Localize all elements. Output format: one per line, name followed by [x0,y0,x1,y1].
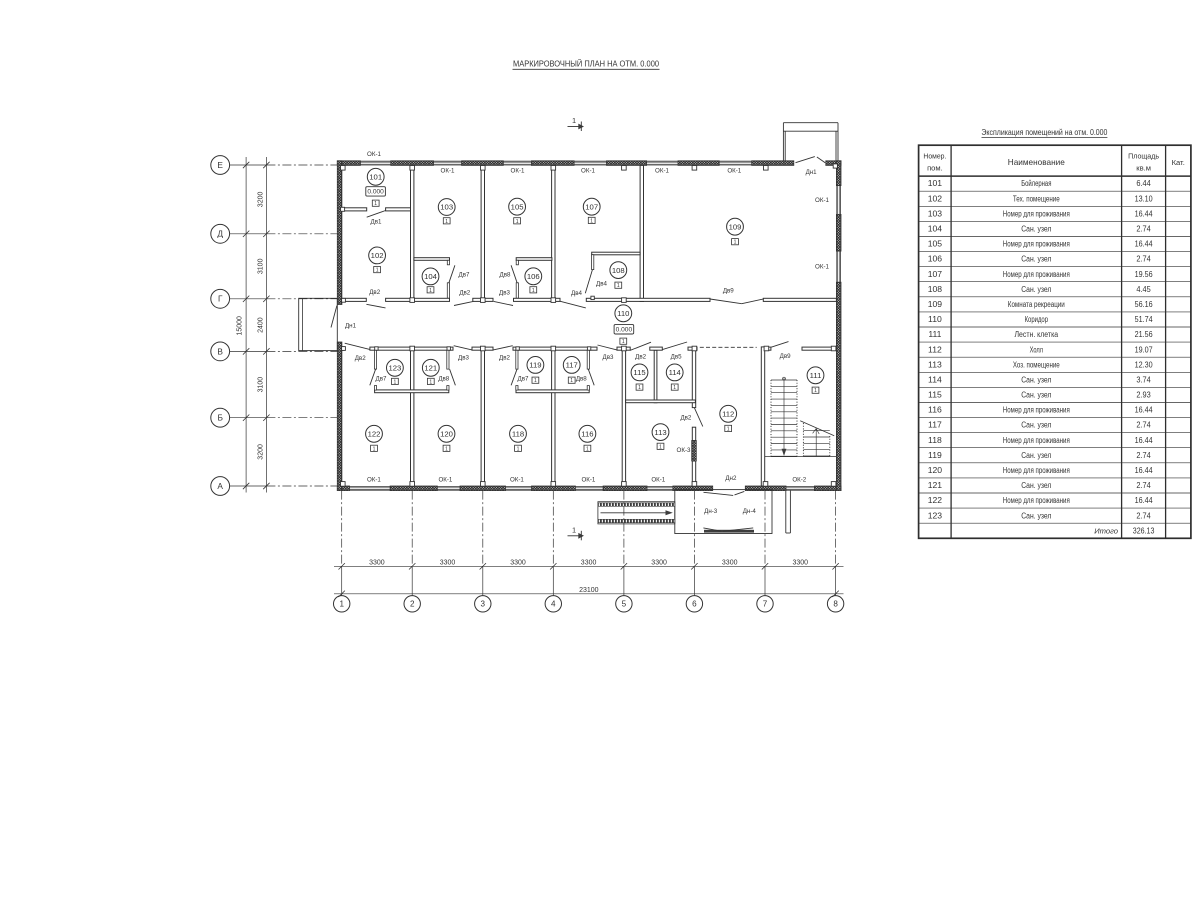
svg-text:1: 1 [570,378,573,384]
svg-text:Номер для проживания: Номер для проживания [1003,496,1070,505]
svg-text:ОК-1: ОК-1 [367,477,381,484]
svg-text:16.44: 16.44 [1135,406,1153,415]
svg-text:1: 1 [572,116,576,125]
svg-text:2: 2 [410,600,415,609]
svg-text:5: 5 [622,600,627,609]
svg-text:Номер.: Номер. [923,152,946,161]
svg-text:122: 122 [368,430,381,439]
svg-text:1: 1 [516,219,519,225]
svg-text:А: А [217,481,223,491]
svg-text:12.30: 12.30 [1135,360,1153,369]
svg-text:ОК-1: ОК-1 [510,477,524,484]
svg-text:105: 105 [511,202,524,211]
svg-text:ОК-1: ОК-1 [581,168,595,175]
svg-text:2.74: 2.74 [1136,225,1151,234]
svg-text:122: 122 [928,495,943,505]
svg-text:8: 8 [833,600,838,609]
svg-text:Дн2: Дн2 [725,475,737,482]
svg-text:Дв7: Дв7 [459,272,470,279]
svg-text:Экспликация помещений на отм.: Экспликация помещений на отм. 0.000 [981,128,1107,137]
svg-text:3300: 3300 [510,560,526,567]
svg-text:Номер для проживания: Номер для проживания [1003,240,1070,249]
svg-text:1: 1 [638,385,641,391]
svg-text:Номер для проживания: Номер для проживания [1003,466,1070,475]
svg-text:119: 119 [529,361,541,370]
svg-text:3300: 3300 [793,560,809,567]
svg-text:Сан. узел: Сан. узел [1021,225,1051,234]
svg-text:Холл: Холл [1030,345,1044,354]
svg-text:2.74: 2.74 [1136,481,1151,490]
svg-text:В: В [217,346,223,356]
svg-text:16.44: 16.44 [1135,466,1153,475]
svg-text:Дв2: Дв2 [369,289,380,296]
svg-text:118: 118 [928,435,942,445]
svg-text:Дв2: Дв2 [635,354,646,361]
svg-text:2.74: 2.74 [1136,255,1151,264]
svg-text:Сан. узел: Сан. узел [1021,391,1051,400]
svg-text:103: 103 [928,208,943,218]
svg-text:Лестн. клетка: Лестн. клетка [1015,330,1059,339]
svg-text:3300: 3300 [722,560,738,567]
svg-text:1: 1 [429,379,432,385]
svg-text:107: 107 [928,269,943,279]
svg-text:101: 101 [369,173,382,182]
svg-text:Дв1: Дв1 [371,219,382,226]
svg-text:Бойлерная: Бойлерная [1021,179,1051,188]
svg-text:ОК-1: ОК-1 [815,264,829,271]
svg-text:120: 120 [440,430,453,439]
svg-text:4.45: 4.45 [1136,285,1151,294]
svg-text:111: 111 [810,371,822,380]
svg-text:1: 1 [622,339,625,345]
svg-text:15000: 15000 [237,316,244,336]
svg-text:Площадь: Площадь [1128,152,1159,161]
svg-text:6.44: 6.44 [1136,179,1151,188]
svg-text:3100: 3100 [257,258,264,274]
svg-text:1: 1 [376,268,379,274]
svg-text:3300: 3300 [651,560,667,567]
svg-text:13.10: 13.10 [1135,194,1153,203]
svg-text:115: 115 [928,390,942,400]
svg-text:106: 106 [527,272,540,281]
svg-text:110: 110 [617,309,629,318]
svg-text:пом.: пом. [927,164,943,173]
svg-text:Тех. помещение: Тех. помещение [1013,194,1060,203]
svg-text:1: 1 [532,288,535,294]
svg-text:Дн1: Дн1 [345,323,357,330]
svg-text:Итого: Итого [1094,526,1118,535]
svg-text:ОК-1: ОК-1 [727,168,741,175]
svg-text:3200: 3200 [257,192,264,208]
svg-text:Д: Д [217,229,223,239]
svg-text:Дв3: Дв3 [458,354,469,361]
svg-text:102: 102 [928,193,943,203]
svg-text:113: 113 [928,359,942,369]
svg-text:Дв9: Дв9 [780,353,791,360]
svg-text:Дв8: Дв8 [500,272,511,279]
svg-text:1: 1 [339,600,344,609]
svg-text:1: 1 [374,201,377,207]
svg-text:119: 119 [928,450,942,460]
svg-text:Сан. узел: Сан. узел [1021,255,1051,264]
svg-text:Дв3: Дв3 [603,354,614,361]
svg-text:123: 123 [928,510,943,520]
svg-text:104: 104 [928,224,943,234]
svg-text:3200: 3200 [257,444,264,460]
svg-text:110: 110 [928,314,942,324]
svg-text:7: 7 [763,600,768,609]
svg-text:112: 112 [722,410,734,419]
svg-text:1: 1 [517,446,520,452]
svg-text:109: 109 [928,299,943,309]
svg-text:Дв8: Дв8 [576,376,587,383]
svg-text:16.44: 16.44 [1135,496,1153,505]
svg-text:Наименование: Наименование [1008,157,1065,167]
svg-text:0.000: 0.000 [367,189,384,196]
svg-text:1: 1 [673,385,676,391]
svg-text:0.000: 0.000 [616,327,633,334]
svg-text:3: 3 [481,600,486,609]
svg-text:16.44: 16.44 [1135,240,1153,249]
svg-text:115: 115 [633,368,645,377]
svg-text:2.74: 2.74 [1136,451,1151,460]
svg-text:2.74: 2.74 [1136,511,1151,520]
svg-text:2.74: 2.74 [1136,421,1151,430]
svg-text:Сан. узел: Сан. узел [1021,421,1051,430]
svg-text:ОК-1: ОК-1 [511,168,525,175]
svg-text:Дв4: Дв4 [571,290,582,297]
svg-text:109: 109 [729,222,742,231]
svg-text:ОК-1: ОК-1 [367,151,381,158]
svg-text:121: 121 [928,480,943,490]
svg-text:1: 1 [445,446,448,452]
svg-text:116: 116 [928,405,942,415]
svg-text:1: 1 [445,219,448,225]
svg-text:106: 106 [928,254,943,264]
svg-text:Номер для проживания: Номер для проживания [1003,406,1070,415]
svg-text:1: 1 [586,446,589,452]
svg-text:117: 117 [566,361,578,370]
svg-text:120: 120 [928,465,943,475]
svg-text:Кат.: Кат. [1172,158,1185,167]
svg-text:ОК-1: ОК-1 [815,197,829,204]
svg-text:108: 108 [612,266,625,275]
svg-text:326.13: 326.13 [1133,526,1155,535]
svg-text:ОК-2: ОК-2 [792,476,806,483]
svg-text:16.44: 16.44 [1135,436,1153,445]
svg-text:ОК-1: ОК-1 [581,477,595,484]
svg-text:19.56: 19.56 [1135,270,1153,279]
svg-text:107: 107 [585,202,598,211]
svg-text:Дв7: Дв7 [518,376,529,383]
svg-text:ОК-1: ОК-1 [438,477,452,484]
svg-text:101: 101 [928,178,943,188]
svg-text:1: 1 [617,283,620,289]
svg-text:112: 112 [928,344,942,354]
svg-text:Дв8: Дв8 [438,376,449,383]
svg-text:Дв4: Дв4 [596,281,607,288]
svg-text:1: 1 [659,444,662,450]
svg-text:Сан. узел: Сан. узел [1021,511,1051,520]
svg-text:1: 1 [373,446,376,452]
svg-text:3100: 3100 [257,377,264,393]
svg-text:Дв2: Дв2 [355,355,366,362]
svg-text:3300: 3300 [581,560,597,567]
svg-text:Сан. узел: Сан. узел [1021,285,1051,294]
svg-text:Г: Г [218,294,223,304]
svg-text:Дн-4: Дн-4 [743,508,757,515]
svg-text:114: 114 [928,374,942,384]
svg-text:117: 117 [928,420,942,430]
svg-text:Номер для проживания: Номер для проживания [1003,209,1070,218]
svg-text:Е: Е [217,160,223,170]
svg-text:23100: 23100 [579,587,599,594]
svg-text:Дн-3: Дн-3 [704,508,718,515]
svg-text:1: 1 [572,526,576,535]
svg-text:2400: 2400 [257,317,264,333]
svg-text:ОК-1: ОК-1 [441,168,455,175]
svg-text:1: 1 [534,378,537,384]
svg-text:Дв2: Дв2 [680,415,691,422]
svg-text:Дв2: Дв2 [499,354,510,361]
svg-text:1: 1 [734,240,737,246]
svg-text:ОК-1: ОК-1 [651,477,665,484]
svg-text:1: 1 [394,379,397,385]
svg-text:Дв5: Дв5 [671,353,682,360]
svg-text:3300: 3300 [369,560,385,567]
svg-text:Хоз. помещение: Хоз. помещение [1013,360,1060,369]
svg-text:123: 123 [388,364,401,373]
svg-text:Дв2: Дв2 [459,289,470,296]
svg-text:4: 4 [551,600,556,609]
svg-text:Дв3: Дв3 [499,289,510,296]
svg-text:113: 113 [654,428,666,437]
svg-text:102: 102 [371,251,384,260]
svg-text:Коридор: Коридор [1025,315,1049,324]
svg-text:103: 103 [440,203,453,212]
svg-text:3300: 3300 [440,560,456,567]
svg-text:1: 1 [727,426,730,432]
svg-text:Сан. узел: Сан. узел [1021,451,1051,460]
svg-text:3.74: 3.74 [1136,375,1151,384]
svg-text:ОК-1: ОК-1 [655,168,669,175]
svg-text:Номер для проживания: Номер для проживания [1003,436,1070,445]
svg-text:21.56: 21.56 [1135,330,1153,339]
svg-text:121: 121 [424,364,437,373]
svg-text:кв.м: кв.м [1136,164,1151,173]
svg-text:Дн1: Дн1 [806,169,818,176]
svg-text:19.07: 19.07 [1135,345,1153,354]
svg-text:108: 108 [928,284,943,294]
svg-text:1: 1 [590,218,593,224]
svg-text:МАРКИРОВОЧНЫЙ ПЛАН НА ОТМ. 0.0: МАРКИРОВОЧНЫЙ ПЛАН НА ОТМ. 0.000 [513,58,659,69]
svg-text:1: 1 [814,388,817,394]
svg-text:ОК-3: ОК-3 [677,447,691,454]
svg-text:Б: Б [217,413,223,423]
svg-text:Дв7: Дв7 [376,376,387,383]
svg-text:51.74: 51.74 [1135,315,1153,324]
svg-text:111: 111 [928,329,941,339]
svg-text:2.93: 2.93 [1136,391,1151,400]
svg-text:105: 105 [928,239,943,249]
svg-text:1: 1 [429,288,432,294]
svg-text:Сан. узел: Сан. узел [1021,481,1051,490]
svg-text:Комната рекреации: Комната рекреации [1008,300,1065,309]
svg-text:118: 118 [512,430,524,439]
svg-text:114: 114 [669,368,682,377]
svg-text:6: 6 [692,600,697,609]
svg-text:Дв9: Дв9 [723,287,734,294]
svg-text:116: 116 [581,430,593,439]
svg-text:Сан. узел: Сан. узел [1021,375,1051,384]
svg-text:16.44: 16.44 [1135,209,1153,218]
svg-text:56.16: 56.16 [1135,300,1153,309]
svg-text:104: 104 [424,272,438,281]
svg-text:Номер для проживания: Номер для проживания [1003,270,1070,279]
